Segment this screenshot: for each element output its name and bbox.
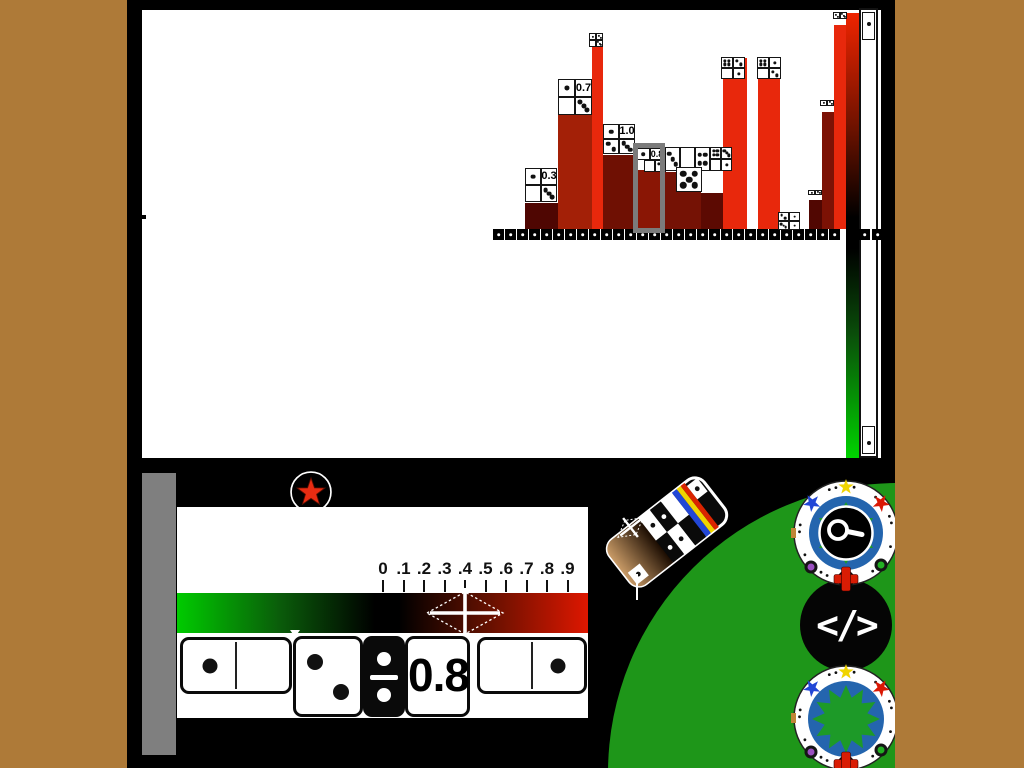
- axis-domino-cell[interactable]: [805, 229, 816, 240]
- domino-label-cell: [596, 33, 603, 40]
- axis-domino-cell[interactable]: [589, 229, 600, 240]
- domino-label-cell: [757, 68, 769, 79]
- domino-label-cell: [778, 212, 789, 221]
- pip-dot: [677, 233, 681, 237]
- pip-dot: [600, 44, 602, 46]
- scale-tick: [526, 580, 528, 592]
- scale-top-marker[interactable]: [862, 12, 875, 40]
- pip-dot: [703, 161, 708, 166]
- axis-domino-cell[interactable]: [673, 229, 684, 240]
- pip-dot: [667, 151, 672, 156]
- game-window: 0.30.71.00.8 0.1.2.3.4.5.6.7.8.9 0.8: [127, 0, 895, 768]
- pip-dot: [569, 233, 573, 237]
- pip-dot: [737, 72, 740, 75]
- pip-dot: [680, 182, 687, 189]
- chart-bar[interactable]: [592, 47, 603, 229]
- scale-tick: [382, 580, 384, 592]
- pip-dot: [725, 233, 729, 237]
- domino-label-cell: [603, 139, 619, 154]
- scale-tick: [403, 580, 405, 592]
- axis-domino-cell[interactable]: [769, 229, 780, 240]
- origin-tick: [138, 215, 146, 219]
- purple-token-core: [808, 564, 815, 571]
- domino-piece-fraction[interactable]: [363, 636, 405, 717]
- pip-dot: [599, 36, 601, 38]
- domino-label-cell: [815, 190, 822, 195]
- scale-bottom-marker[interactable]: [862, 426, 875, 454]
- pip-dot: [793, 224, 796, 227]
- pip-dot: [739, 63, 742, 66]
- domino-label-cell: [710, 159, 721, 171]
- pip-dot: [701, 233, 705, 237]
- axis-domino-cell[interactable]: [872, 229, 883, 240]
- pip-dot: [609, 129, 614, 134]
- scale-number: .9: [560, 559, 574, 579]
- axis-domino-cell[interactable]: [493, 229, 504, 240]
- globe-badge[interactable]: [791, 663, 895, 768]
- pip-dot: [737, 233, 741, 237]
- scale-number: 0: [378, 559, 387, 579]
- axis-domino-cell[interactable]: [781, 229, 792, 240]
- pip-dot: [759, 63, 762, 66]
- pip-dot: [531, 174, 536, 179]
- pip-dot: [333, 684, 349, 700]
- axis-domino-cell[interactable]: [685, 229, 696, 240]
- value-label: 0.8: [408, 647, 467, 701]
- chart-bar[interactable]: [822, 112, 834, 229]
- pip-dot: [725, 163, 728, 166]
- pip-dot: [593, 233, 597, 237]
- purple-token-core: [808, 749, 815, 756]
- scale-number: .5: [478, 559, 492, 579]
- pip-dot: [771, 70, 774, 73]
- pip-dot: [784, 217, 787, 220]
- pip-dot: [822, 102, 824, 104]
- pip-dot: [821, 233, 825, 237]
- pip-dot: [591, 35, 593, 37]
- pip-dot: [545, 233, 549, 237]
- domino-piece-double[interactable]: [477, 637, 587, 694]
- domino-stamp-tool[interactable]: [595, 462, 745, 612]
- pip-dot: [670, 157, 675, 162]
- pip-dot: [844, 16, 846, 18]
- pip-dot: [833, 233, 837, 237]
- pip-dot: [557, 233, 561, 237]
- scale-number: .6: [499, 559, 513, 579]
- pip-dot: [749, 233, 753, 237]
- domino-divider: [235, 642, 237, 689]
- axis-domino-cell[interactable]: [793, 229, 804, 240]
- domino-label-cell: 1.0: [619, 124, 635, 139]
- scale-tick: [546, 580, 548, 592]
- domino-label-cell: [721, 147, 732, 159]
- number-line-gradient[interactable]: [177, 593, 588, 633]
- pip-dot: [863, 233, 867, 237]
- pip-dot: [641, 233, 645, 237]
- domino-label-cell: [769, 68, 781, 79]
- axis-domino-cell[interactable]: [733, 229, 744, 240]
- pip-dot: [377, 688, 391, 702]
- pip-dot: [617, 233, 621, 237]
- pip-dot: [784, 226, 787, 229]
- pip-dot: [692, 182, 699, 189]
- axis-domino-cell[interactable]: [601, 229, 612, 240]
- chart-bar[interactable]: [603, 155, 635, 229]
- domino-piece-value[interactable]: 0.8: [405, 636, 470, 717]
- pip-dot: [585, 107, 590, 112]
- side-handle[interactable]: [142, 473, 176, 755]
- pip-dot: [716, 153, 719, 156]
- pip-dot: [612, 147, 617, 152]
- pip-dot: [606, 142, 611, 147]
- pip-dot: [727, 63, 730, 66]
- chart-bar[interactable]: [701, 193, 723, 229]
- pip-dot: [785, 233, 789, 237]
- pip-dot: [564, 85, 569, 90]
- scale-number: .1: [396, 559, 410, 579]
- pip-dot: [735, 59, 738, 62]
- domino-label-cell: [789, 212, 800, 221]
- domino-label-cell: [575, 97, 592, 115]
- axis-domino-cell[interactable]: [757, 229, 768, 240]
- pip-dot: [653, 233, 657, 237]
- scale-number: .3: [437, 559, 451, 579]
- magnifier-badge[interactable]: [791, 478, 895, 594]
- domino-divider: [531, 642, 533, 689]
- chart-bar[interactable]: [834, 25, 846, 229]
- domino-label-cell: [676, 167, 702, 192]
- domino-label-cell: [733, 68, 745, 79]
- crosshair-marker[interactable]: [425, 585, 505, 641]
- domino-label-cell: 0.7: [575, 79, 592, 97]
- scale-number: .4: [458, 559, 472, 579]
- pip-dot: [773, 233, 777, 237]
- pip-dot: [713, 233, 717, 237]
- green-token-core: [878, 562, 885, 569]
- pip-dot: [497, 233, 501, 237]
- badge-clasp-left: [791, 528, 796, 538]
- pip-dot: [818, 192, 820, 194]
- axis-domino-cell[interactable]: [721, 229, 732, 240]
- axis-domino-cell[interactable]: [613, 229, 624, 240]
- pip-dot: [797, 233, 801, 237]
- scale-number: .7: [519, 559, 533, 579]
- domino-label-cell: [558, 97, 575, 115]
- pip-dot: [629, 233, 633, 237]
- scale-tick: [505, 580, 507, 592]
- number-line-tray: 0.1.2.3.4.5.6.7.8.9 0.8: [177, 507, 588, 718]
- pip-dot: [581, 233, 585, 237]
- domino-label-cell: [820, 100, 827, 106]
- pip-dot: [761, 233, 765, 237]
- domino-label-cell: [541, 185, 557, 202]
- domino-label-cell: [710, 147, 721, 159]
- domino-label-cell: [769, 57, 781, 68]
- stamp-pin: [636, 574, 638, 600]
- scale-tick: [567, 580, 569, 592]
- axis-domino-cell[interactable]: [541, 229, 552, 240]
- green-token-core: [878, 747, 885, 754]
- domino-label-cell: [558, 79, 575, 97]
- domino-label-cell: [833, 12, 840, 19]
- domino-label-cell: [589, 40, 596, 47]
- fraction-bar: [370, 675, 397, 680]
- domino-label-cell: [525, 185, 541, 202]
- axis-domino-cell[interactable]: [859, 229, 870, 240]
- domino-label-cell: [808, 190, 815, 195]
- domino-label-cell: 0.3: [541, 168, 557, 185]
- pip-dot: [727, 154, 730, 157]
- pip-dot: [830, 103, 832, 105]
- pip-dot: [698, 152, 703, 157]
- pip-dot: [605, 233, 609, 237]
- pip-dot: [509, 233, 513, 237]
- chart-bar[interactable]: [525, 203, 558, 229]
- chart-bar[interactable]: [723, 58, 747, 229]
- pip-dot: [716, 149, 719, 152]
- pip-dot: [665, 233, 669, 237]
- domino-label-cell: [525, 168, 541, 185]
- pip-dot: [202, 658, 217, 673]
- domino-label-cell: [721, 57, 733, 68]
- axis-domino-cell[interactable]: [745, 229, 756, 240]
- pip-dot: [680, 171, 687, 178]
- chart-bar[interactable]: [758, 58, 780, 229]
- axis-domino-cell[interactable]: [817, 229, 828, 240]
- axis-domino-cell[interactable]: [697, 229, 708, 240]
- axis-domino-cell[interactable]: [553, 229, 564, 240]
- pip-dot: [689, 233, 693, 237]
- pip-dot: [686, 176, 693, 183]
- pip-dot: [307, 654, 323, 670]
- pip-dot: [698, 161, 703, 166]
- scale-number: .8: [540, 559, 554, 579]
- axis-domino-cell[interactable]: [529, 229, 540, 240]
- app-stage: 0.30.71.00.8 0.1.2.3.4.5.6.7.8.9 0.8: [0, 0, 1024, 768]
- domino-label-cell: [757, 57, 769, 68]
- axis-domino-cell[interactable]: [505, 229, 516, 240]
- chart-bar[interactable]: [809, 200, 822, 229]
- scale-number: .2: [417, 559, 431, 579]
- domino-label-cell: [778, 221, 789, 230]
- control-panel: 0.1.2.3.4.5.6.7.8.9 0.8: [127, 458, 895, 768]
- pip-dot: [628, 147, 633, 152]
- pip-dot: [793, 215, 796, 218]
- pip-dot: [703, 152, 708, 157]
- domino-label-cell: [733, 57, 745, 68]
- pip-dot: [521, 233, 525, 237]
- pip-dot: [673, 162, 678, 167]
- pip-dot: [810, 191, 812, 193]
- badge-clasp-left: [791, 713, 796, 723]
- domino-label-cell: [589, 33, 596, 40]
- pip-dot: [780, 214, 783, 217]
- domino-label-cell: [721, 159, 732, 171]
- domino-piece-single[interactable]: [293, 636, 363, 717]
- pip-dot: [377, 652, 391, 666]
- pip-dot: [763, 63, 766, 66]
- pip-dot: [550, 195, 555, 200]
- domino-label-cell: [603, 124, 619, 139]
- selection-cursor[interactable]: [633, 143, 665, 233]
- domino-label-cell: [596, 40, 603, 47]
- pip-dot: [551, 658, 566, 673]
- axis-domino-cell[interactable]: [565, 229, 576, 240]
- domino-piece-double[interactable]: [180, 637, 292, 694]
- domino-label-cell: [721, 68, 733, 79]
- code-button-label: </>: [816, 603, 876, 647]
- pip-dot: [876, 233, 880, 237]
- pip-dot: [692, 171, 699, 178]
- pip-dot: [836, 15, 838, 17]
- axis-domino-cell[interactable]: [709, 229, 720, 240]
- chart-bar[interactable]: [558, 115, 592, 229]
- axis-domino-cell[interactable]: [577, 229, 588, 240]
- domino-label-cell: [840, 12, 847, 19]
- domino-label-cell: [789, 221, 800, 230]
- axis-domino-cell[interactable]: [829, 229, 840, 240]
- axis-domino-cell[interactable]: [517, 229, 528, 240]
- pip-dot: [533, 233, 537, 237]
- pip-dot: [809, 233, 813, 237]
- domino-label-cell: [827, 100, 834, 106]
- pip-dot: [723, 63, 726, 66]
- pip-dot: [773, 61, 776, 64]
- outcome-scale-gradient: [846, 13, 859, 458]
- pip-dot: [775, 74, 778, 77]
